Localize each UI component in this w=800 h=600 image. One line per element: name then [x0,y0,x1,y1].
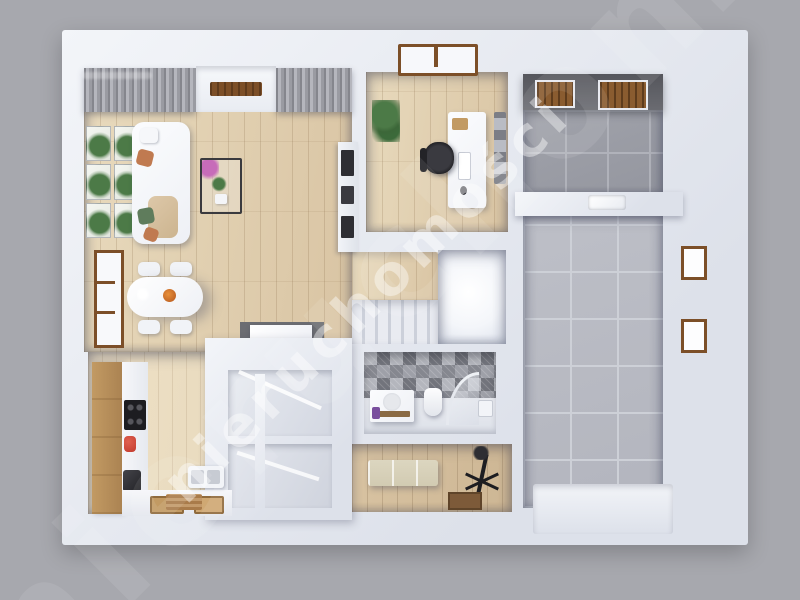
desk-board [452,118,468,130]
curtain-text-smudge [82,72,152,79]
red-kettle [124,436,136,452]
toilet [424,388,442,416]
orchid-leaves [210,176,228,192]
sink-basin-2 [207,470,220,484]
office-window-mullion [434,47,438,67]
doormat [448,492,482,510]
skylight-1 [535,80,575,108]
floor-plan-render: nieruchomości nieruchomości [0,0,800,600]
curtain-right [276,68,352,112]
garage-floor [523,214,663,508]
perfume-bottle [372,407,380,419]
garage-platform [533,484,673,534]
desk-mouse [460,186,467,195]
coat-rack-top [472,446,490,460]
dining-chair [170,320,192,334]
kitchen-sink [188,466,224,488]
staircase [352,300,438,344]
office-wall-shelf [494,112,506,184]
table-flowers [137,288,151,302]
sink-basin [191,470,204,484]
office-plant [372,100,400,142]
office-chair-back [420,148,427,172]
dining-window-mullion-2 [97,311,115,314]
dining-window-mullion [97,281,115,284]
utility-room-floor [523,96,663,196]
kitchen-tall-cabinets [92,362,122,514]
closet-inner-upper [228,370,332,436]
botanical-print [86,126,111,161]
built-in-oven [341,150,354,176]
garage-window-2 [681,319,707,353]
office-chair [424,142,454,174]
shower-control-box [478,400,493,417]
botanical-print [86,203,111,238]
coffee-machine [123,470,141,492]
fruit-bowl [163,289,176,302]
dining-chair [138,320,160,334]
hallway-floor [352,252,438,300]
living-window-beam [210,82,262,96]
dining-chair [170,262,192,276]
wall-art-grid [86,126,138,238]
built-in-coffee [341,216,354,238]
sofa-pillow-white [140,128,158,143]
skylight-2 [598,80,648,110]
utility-sink [588,195,626,210]
dining-chair [138,262,160,276]
sofa-pillow-green [137,207,156,226]
entry-bench [368,460,438,486]
built-in-microwave [341,186,354,204]
kitchen-step-mat [166,494,202,510]
desk-keyboard [458,152,471,180]
appliance-column [338,142,358,252]
closet-divider-wall [255,374,265,508]
vanity-mirror [383,393,401,411]
landing-room-floor [438,250,506,344]
cooktop [124,400,146,430]
office-window [398,44,478,76]
dining-window [94,250,124,348]
orchid-pot [215,194,227,204]
botanical-print [86,164,111,199]
garage-window-1 [681,246,707,280]
